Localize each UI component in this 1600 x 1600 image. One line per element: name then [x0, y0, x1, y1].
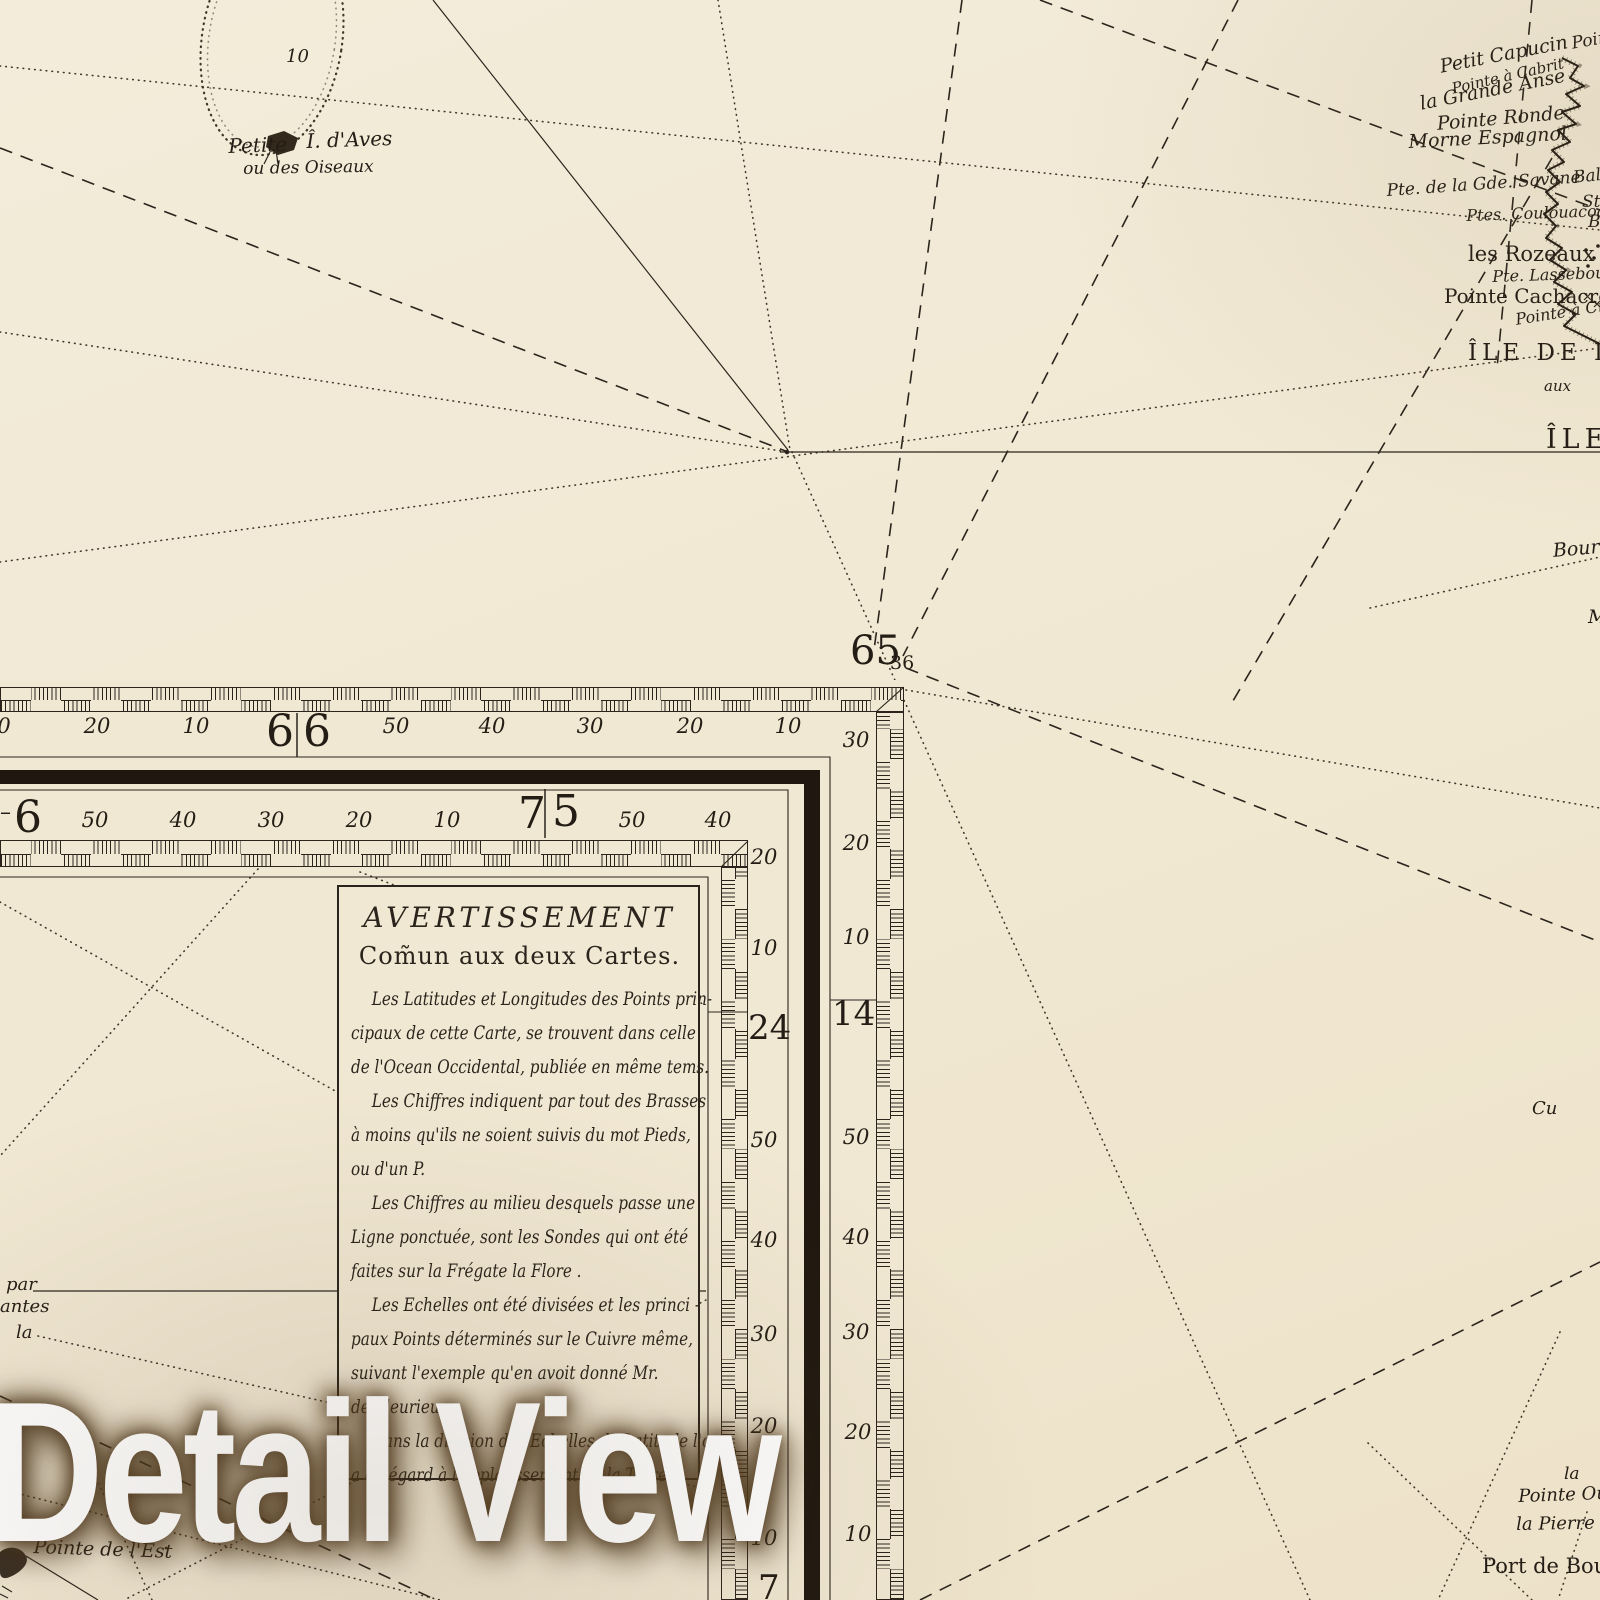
aves-island-reef — [185, 0, 360, 166]
cachacrou-rock-marks — [1584, 293, 1600, 307]
compass-vertex-dot — [785, 450, 790, 455]
detail-view-watermark: Detail View — [0, 1358, 777, 1588]
solid-rhumb-lines — [433, 0, 1600, 454]
coastline — [1544, 58, 1600, 344]
antique-nautical-chart: AVERTISSEMENT Com̃un aux deux Cartes. Le… — [0, 0, 1600, 1600]
rozeaux-rocks — [1584, 244, 1600, 268]
aves-islet-shape — [266, 131, 298, 155]
